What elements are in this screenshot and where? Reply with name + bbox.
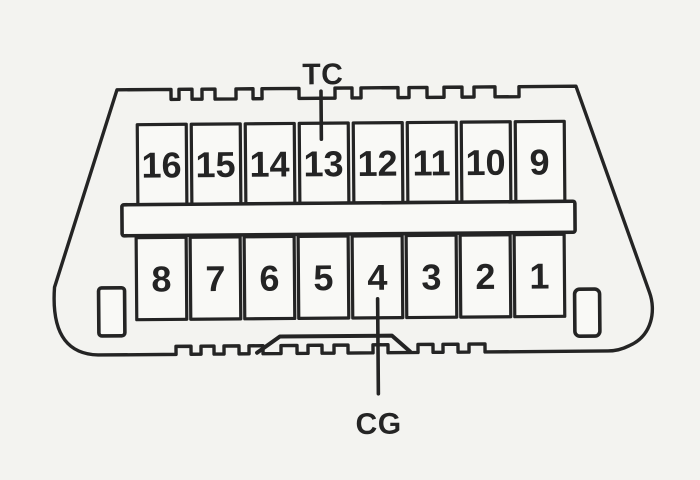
- pin-row-bottom: [136, 234, 565, 319]
- left-mount-slot: [99, 288, 125, 336]
- center-key-rail: [122, 201, 575, 236]
- pin-12-label: 12: [357, 143, 397, 184]
- pin-11-label: 11: [412, 142, 450, 183]
- cg-label: CG: [355, 408, 401, 441]
- dlc-connector-diagram: TC CG 16 15 14 13 12 11 10 9 8 7 6 5 4 3…: [0, 0, 700, 480]
- pin-16-label: 16: [141, 144, 181, 185]
- pin-10-label: 10: [465, 142, 505, 183]
- pin-5-label: 5: [313, 257, 333, 298]
- pin-6-label: 6: [259, 258, 279, 299]
- tc-label: TC: [302, 58, 343, 91]
- pin-8-label: 8: [151, 258, 171, 299]
- right-mount-slot: [575, 289, 600, 336]
- pin-3-label: 3: [421, 256, 441, 297]
- connector-diagram-canvas: TC CG 16 15 14 13 12 11 10 9 8 7 6 5 4 3…: [0, 0, 700, 480]
- pin-2-label: 2: [475, 256, 495, 297]
- pin-1-label: 1: [529, 255, 549, 296]
- pin-7-label: 7: [205, 258, 225, 299]
- cg-pointer-line: [378, 299, 379, 394]
- pin-14-label: 14: [249, 143, 289, 184]
- pin-4-label: 4: [367, 257, 387, 298]
- pin-9-label: 9: [529, 141, 549, 182]
- pin-13-label: 13: [303, 143, 343, 184]
- pin-15-label: 15: [195, 144, 235, 185]
